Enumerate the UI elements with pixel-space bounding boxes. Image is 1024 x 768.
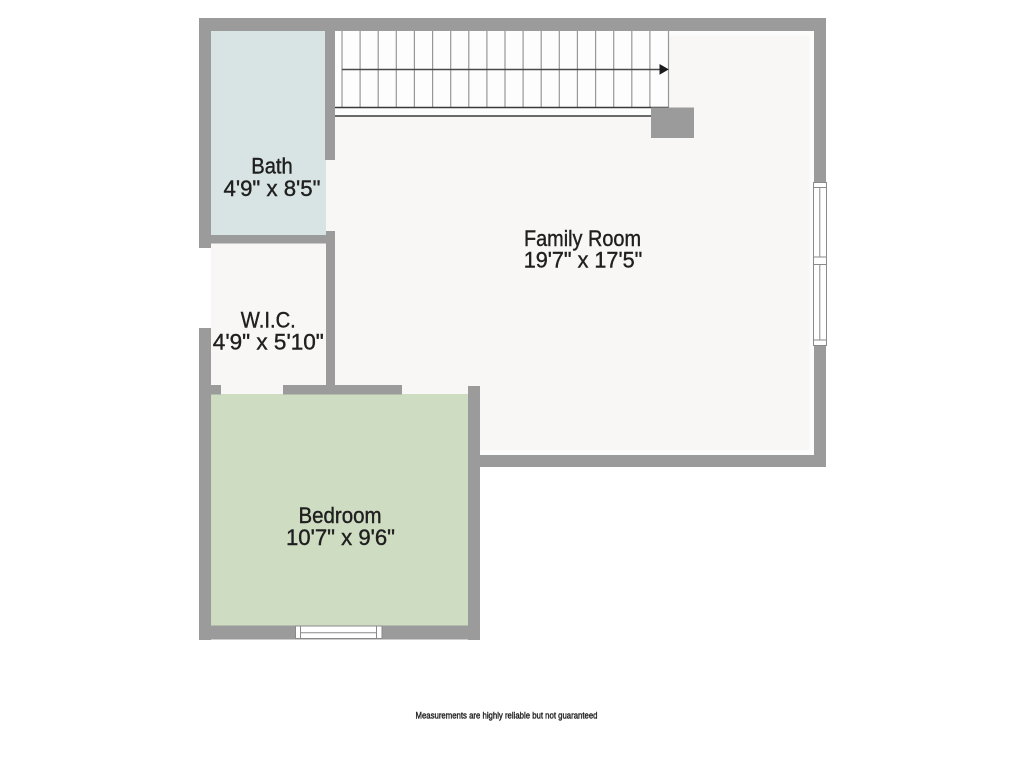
svg-text:10'7" x 9'6": 10'7" x 9'6": [286, 525, 395, 550]
svg-text:Bath: Bath: [251, 154, 293, 179]
svg-text:19'7" x 17'5": 19'7" x 17'5": [524, 248, 643, 273]
svg-text:4'9" x 5'10": 4'9" x 5'10": [213, 330, 324, 355]
svg-text:Measurements are highly reliab: Measurements are highly reliable but not…: [416, 711, 598, 722]
svg-text:4'9" x 8'5": 4'9" x 8'5": [224, 176, 321, 201]
